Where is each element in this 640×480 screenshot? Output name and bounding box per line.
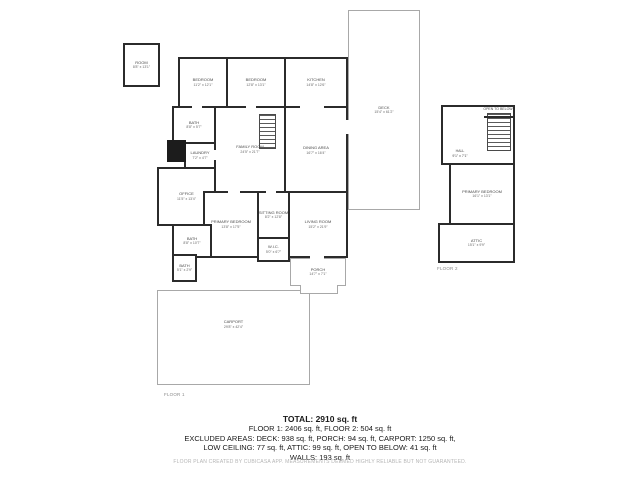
- summary-line: LOW CEILING: 77 sq. ft, ATTIC: 99 sq. ft…: [0, 443, 640, 453]
- door-opening: [228, 189, 240, 194]
- open-to-below-divider: [484, 116, 515, 118]
- room-label: PRIMARY BEDROOM 16'1" x 13'1": [462, 189, 502, 200]
- room-label: PORCH 14'7" x 7'1": [309, 267, 326, 278]
- door-opening: [345, 120, 350, 134]
- room-sitting: SITTING ROOM 8'2" x 12'8": [257, 191, 290, 239]
- disclaimer-text: FLOOR PLAN CREATED BY CUBICASA APP. MEAS…: [0, 459, 640, 465]
- room-bath-lower: BATH 8'8" x 10'7": [172, 224, 212, 258]
- door-opening: [310, 256, 324, 261]
- room-label: KITCHEN 14'8" x 12'6": [306, 77, 325, 88]
- door-opening: [300, 104, 324, 109]
- door-opening: [246, 104, 256, 109]
- room-label: W.I.C. 5'0" x 6'7": [266, 244, 281, 255]
- room-bath-small: BATH 5'1" x 2'9": [172, 254, 197, 282]
- floor2-caption: FLOOR 2: [437, 266, 458, 271]
- room-label: ATTIC 15'1" x 9'9": [468, 238, 485, 249]
- room-label: DECK 15'4" x 61'2": [374, 105, 393, 116]
- porch-steps: [300, 285, 338, 294]
- room-wic: W.I.C. 5'0" x 6'7": [257, 237, 290, 262]
- room-attic: ATTIC 15'1" x 9'9": [438, 223, 515, 263]
- room-detached: ROOM 8'8" x 13'1": [123, 43, 160, 87]
- room-kitchen: KITCHEN 14'8" x 12'6": [284, 57, 348, 108]
- room-label: PRIMARY BEDROOM 13'8" x 17'5": [211, 219, 251, 230]
- staircase-floor1: [259, 114, 276, 149]
- room-carport: CARPORT 29'8" x 42'4": [157, 290, 310, 385]
- area-summary: TOTAL: 2910 sq. ft FLOOR 1: 2406 sq. ft,…: [0, 414, 640, 462]
- room-primary-bedroom-2: PRIMARY BEDROOM 16'1" x 13'1": [449, 163, 515, 225]
- room-label: SITTING ROOM 8'2" x 12'8": [259, 210, 288, 221]
- room-label: LAUNDRY 7'2" x 4'7": [190, 150, 209, 161]
- room-living: LIVING ROOM 15'2" x 21'9": [288, 191, 348, 258]
- room-bedroom-west: BEDROOM 11'2" x 12'1": [178, 57, 228, 108]
- chimney-block: [167, 140, 186, 162]
- room-label: CARPORT 29'8" x 42'4": [224, 319, 243, 330]
- room-label: DINING AREA 16'7" x 16'4": [303, 145, 329, 156]
- room-laundry: LAUNDRY 7'2" x 4'7": [184, 142, 216, 169]
- room-label: BATH 8'8" x 5'7": [186, 120, 201, 131]
- room-label: BEDROOM 12'8" x 13'1": [246, 77, 267, 88]
- room-label: OFFICE 11'5" x 13'4": [177, 191, 196, 202]
- room-label: BEDROOM 11'2" x 12'1": [193, 77, 214, 88]
- room-label: LIVING ROOM 15'2" x 21'9": [305, 219, 332, 230]
- door-opening: [192, 104, 202, 109]
- room-bath-top: BATH 8'8" x 5'7": [172, 106, 216, 144]
- summary-line: FLOOR 1: 2406 sq. ft, FLOOR 2: 504 sq. f…: [0, 424, 640, 434]
- total-area: TOTAL: 2910 sq. ft: [0, 414, 640, 424]
- staircase-floor2: [487, 113, 511, 151]
- room-label: ROOM 8'8" x 13'1": [133, 60, 150, 71]
- summary-line: EXCLUDED AREAS: DECK: 938 sq. ft, PORCH:…: [0, 434, 640, 444]
- floor-plan-canvas: DECK 15'4" x 61'2" CARPORT 29'8" x 42'4"…: [0, 0, 640, 480]
- room-bedroom-center: BEDROOM 12'8" x 13'1": [226, 57, 286, 108]
- room-porch: PORCH 14'7" x 7'1": [290, 258, 346, 286]
- door-opening: [266, 189, 276, 194]
- room-hall-label: HALL 9'1" x 7'1": [444, 149, 476, 159]
- room-deck: DECK 15'4" x 61'2": [348, 10, 420, 210]
- room-label: BATH 5'1" x 2'9": [177, 263, 192, 274]
- room-label: BATH 8'8" x 10'7": [183, 236, 200, 247]
- door-opening: [213, 150, 218, 160]
- open-to-below-label: OPEN TO BELOW: [480, 107, 516, 112]
- room-dining: DINING AREA 16'7" x 16'4": [284, 106, 348, 195]
- floor1-caption: FLOOR 1: [164, 392, 185, 397]
- door-opening: [213, 198, 218, 210]
